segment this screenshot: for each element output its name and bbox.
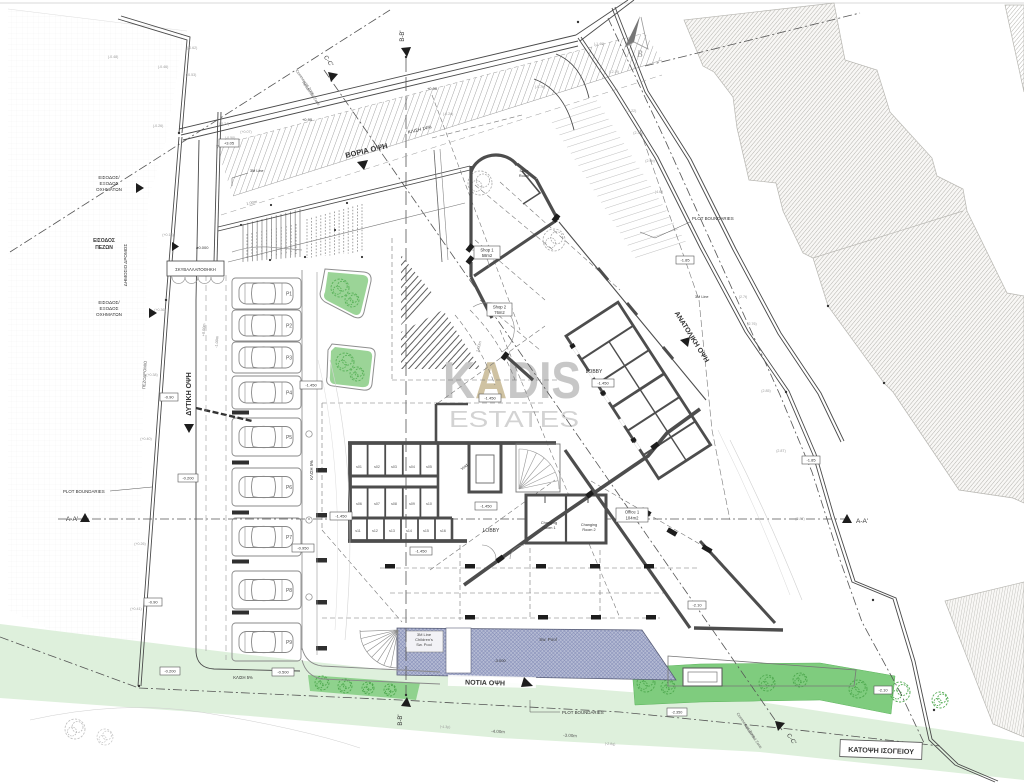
svg-text:ΝΟΤΙΑ ΟΨΗ: ΝΟΤΙΑ ΟΨΗ [465, 679, 505, 687]
svg-text:P7: P7 [286, 535, 292, 541]
svg-text:104m2: 104m2 [626, 516, 639, 521]
svg-text:(+0.38): (+0.38) [146, 373, 158, 377]
svg-text:-0.500: -0.500 [277, 669, 289, 674]
svg-text:Shop 2: Shop 2 [493, 305, 507, 310]
svg-text:s16: s16 [440, 529, 446, 533]
svg-text:3M Line: 3M Line [695, 295, 709, 299]
svg-text:Store: Store [519, 169, 528, 173]
svg-text:(-0.46): (-0.46) [158, 65, 169, 69]
svg-text:76m2: 76m2 [494, 310, 505, 315]
svg-text:s10: s10 [426, 502, 432, 506]
svg-text:(2.76): (2.76) [747, 322, 756, 326]
svg-text:ΠΕΖΩΝ: ΠΕΖΩΝ [95, 245, 113, 251]
svg-text:PLOT BOUNDARIES: PLOT BOUNDARIES [562, 710, 604, 715]
svg-text:-3.000: -3.000 [494, 658, 506, 663]
svg-text:ΔΗΜΟΣΙΟ ΔΡΟΜΟΣ: ΔΗΜΟΣΙΟ ΔΡΟΜΟΣ [123, 244, 128, 287]
svg-text:-4.00m: -4.00m [491, 729, 505, 735]
svg-text:-0.90: -0.90 [164, 394, 174, 399]
svg-text:-1.450: -1.450 [597, 380, 609, 385]
svg-text:B-B': B-B' [400, 30, 406, 41]
svg-text:P9: P9 [286, 640, 292, 646]
svg-text:(-0.62): (-0.62) [187, 46, 198, 50]
svg-text:(+0.36): (+0.36) [154, 308, 166, 312]
svg-text:ΣΚΥΒΑΛΛΑΠΟΘΗΚΗ: ΣΚΥΒΑΛΛΑΠΟΘΗΚΗ [175, 267, 216, 272]
svg-text:ø0.000: ø0.000 [196, 245, 209, 250]
svg-text:(-0.53): (-0.53) [186, 73, 197, 77]
svg-text:(-3.22): (-3.22) [626, 109, 637, 113]
svg-text:A-A': A-A' [856, 518, 868, 525]
svg-text:-3.00m: -3.00m [563, 733, 577, 739]
svg-text:(-0.48): (-0.48) [108, 55, 119, 59]
svg-text:ΕΙΣΟΔΟΣ/: ΕΙΣΟΔΟΣ/ [98, 300, 120, 305]
svg-text:Sw. Pool: Sw. Pool [539, 637, 557, 642]
svg-text:-2.350: -2.350 [672, 710, 683, 714]
svg-text:P8: P8 [286, 588, 292, 594]
svg-text:Changing: Changing [581, 523, 597, 527]
svg-text:(2.9b): (2.9b) [645, 159, 654, 163]
svg-text:B: B [637, 49, 643, 59]
svg-text:(+0.13): (+0.13) [162, 233, 174, 237]
svg-text:(-2.1t): (-2.1t) [609, 70, 619, 74]
svg-text:(2.31): (2.31) [633, 131, 642, 135]
svg-text:P1: P1 [286, 292, 292, 298]
svg-text:-1.450: -1.450 [335, 513, 347, 518]
svg-text:PLOT BOUNDARIES: PLOT BOUNDARIES [63, 489, 105, 494]
svg-text:LOBBY: LOBBY [483, 528, 500, 534]
svg-text:(2.87): (2.87) [795, 517, 804, 521]
svg-text:-1.85: -1.85 [806, 457, 816, 462]
svg-text:P2: P2 [286, 324, 292, 330]
svg-text:+3.05: +3.05 [224, 140, 235, 145]
svg-text:s07: s07 [374, 502, 380, 506]
svg-text:Room 2: Room 2 [582, 528, 595, 532]
svg-text:ΕΙΣΟΔΟΣ/: ΕΙΣΟΔΟΣ/ [98, 175, 120, 180]
svg-text:ΚΛΙΣΗ 5%: ΚΛΙΣΗ 5% [233, 675, 253, 680]
svg-text:-2.10: -2.10 [878, 687, 888, 692]
svg-text:ΕΙΣΟΔΟΣ: ΕΙΣΟΔΟΣ [93, 238, 115, 244]
svg-text:P5: P5 [286, 435, 292, 441]
svg-text:Room: Room [519, 174, 529, 178]
svg-text:(-0.24): (-0.24) [219, 122, 230, 126]
svg-text:+0.90: +0.90 [302, 117, 313, 122]
svg-text:(2.8T): (2.8T) [776, 449, 786, 453]
svg-text:P3: P3 [286, 356, 292, 362]
svg-text:(2.85): (2.85) [761, 389, 770, 393]
svg-text:s02: s02 [374, 465, 380, 469]
svg-text:-0.950: -0.950 [297, 545, 309, 550]
svg-text:s13: s13 [389, 529, 395, 533]
svg-text:(-0.50): (-0.50) [225, 136, 236, 140]
svg-text:(+0.07): (+0.07) [240, 130, 252, 134]
svg-text:(+0.40): (+0.40) [140, 437, 152, 441]
svg-text:s14: s14 [406, 529, 412, 533]
svg-text:(4.6j): (4.6j) [655, 190, 663, 194]
svg-text:A-A': A-A' [66, 516, 78, 523]
svg-text:ΟΧΗΜΑΤΩΝ: ΟΧΗΜΑΤΩΝ [96, 187, 122, 192]
svg-text:(2.7t): (2.7t) [739, 295, 747, 299]
svg-text:ΟΧΗΜΑΤΩΝ: ΟΧΗΜΑΤΩΝ [96, 312, 122, 317]
svg-text:(-1.46): (-1.46) [594, 42, 605, 46]
svg-text:-0.200: -0.200 [164, 668, 176, 673]
svg-text:-1.450: -1.450 [415, 548, 427, 553]
svg-text:(-0.26): (-0.26) [153, 124, 164, 128]
svg-text:s06: s06 [356, 502, 362, 506]
svg-text:(+0.41): (+0.41) [130, 607, 142, 611]
svg-text:ΚΛΙΣΗ 5%: ΚΛΙΣΗ 5% [309, 460, 314, 480]
svg-text:(-4.3p): (-4.3p) [440, 725, 451, 730]
svg-text:Room 1: Room 1 [542, 526, 555, 530]
svg-text:ΕΞΟΔΟΣ: ΕΞΟΔΟΣ [100, 306, 119, 311]
svg-text:-1.450: -1.450 [305, 382, 317, 387]
svg-text:s11: s11 [355, 529, 361, 533]
svg-text:B-B': B-B' [398, 714, 404, 725]
svg-text:s01: s01 [356, 465, 362, 469]
svg-text:ΕΞΟΔΟΣ: ΕΞΟΔΟΣ [100, 181, 119, 186]
svg-text:s09: s09 [409, 502, 415, 506]
svg-text:-1.450: -1.450 [480, 503, 492, 508]
svg-text:(-0.7b): (-0.7b) [535, 85, 546, 89]
svg-text:P6: P6 [286, 485, 292, 491]
svg-text:P4: P4 [286, 391, 292, 397]
svg-text:3M Line: 3M Line [250, 169, 264, 173]
svg-text:s05: s05 [426, 465, 432, 469]
svg-text:s15: s15 [423, 529, 429, 533]
svg-text:-1.450: -1.450 [484, 395, 496, 400]
svg-text:Shop 1: Shop 1 [480, 248, 494, 253]
svg-text:Sw. Pool: Sw. Pool [416, 642, 432, 647]
svg-text:-2.10: -2.10 [692, 602, 702, 607]
svg-text:s12: s12 [372, 529, 378, 533]
svg-text:Office 1: Office 1 [625, 510, 640, 515]
svg-text:s03: s03 [391, 465, 397, 469]
svg-text:(-2.8q): (-2.8q) [605, 742, 616, 747]
svg-text:+0.00: +0.00 [427, 86, 438, 91]
svg-text:58m2: 58m2 [482, 253, 493, 258]
svg-text:-0.200: -0.200 [182, 475, 194, 480]
svg-text:(+0.26): (+0.26) [134, 542, 146, 546]
svg-text:ΔΥΤΙΚΗ ΟΨΗ: ΔΥΤΙΚΗ ΟΨΗ [186, 372, 193, 416]
svg-text:s04: s04 [409, 465, 415, 469]
svg-text:(-0.2a): (-0.2a) [443, 112, 454, 116]
svg-text:PLOT BOUNDARIES: PLOT BOUNDARIES [692, 216, 734, 221]
svg-text:-0.90: -0.90 [148, 599, 158, 604]
svg-text:s08: s08 [391, 502, 397, 506]
svg-text:-1.85: -1.85 [680, 257, 690, 262]
svg-text:Changing: Changing [541, 521, 557, 525]
svg-text:LOBBY: LOBBY [586, 369, 603, 375]
